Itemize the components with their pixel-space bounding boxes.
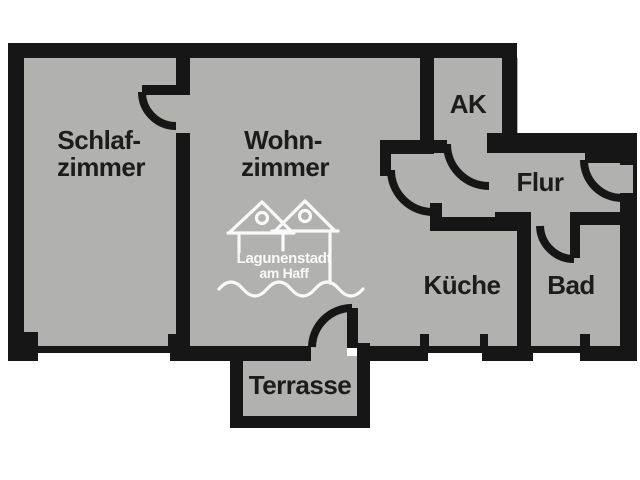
wall: [8, 332, 38, 361]
room-label-kueche: Küche: [424, 270, 501, 300]
wall: [495, 212, 531, 225]
wall: [357, 343, 370, 428]
wall: [420, 334, 429, 346]
wall: [420, 58, 434, 140]
window: [533, 346, 580, 353]
terrace-door-gap: [311, 346, 347, 362]
door-leaf: [585, 150, 622, 163]
wall: [8, 43, 24, 361]
wall: [8, 43, 517, 58]
window: [38, 346, 170, 353]
wall: [176, 133, 190, 346]
room-label-wohnzimmer-line2: zimmer: [241, 152, 329, 182]
wall: [517, 212, 531, 361]
wall: [570, 212, 637, 225]
floor-areas: [22, 58, 621, 418]
wall: [580, 346, 637, 361]
room-label-schlafzimmer-line1: Schlaf-: [57, 125, 140, 155]
room-label-ak: AK: [450, 89, 487, 119]
wall: [168, 334, 190, 346]
floorplan-svg: Schlaf- zimmer Wohn- zimmer AK Flur Küch…: [0, 0, 640, 480]
door-leaf: [570, 225, 580, 258]
room-floor-main: [22, 58, 518, 346]
door-leaf: [347, 308, 358, 348]
room-label-bad: Bad: [547, 270, 595, 300]
room-label-terrasse: Terrasse: [249, 370, 352, 400]
logo-text-line2: am Haff: [259, 265, 309, 281]
wall: [230, 416, 370, 428]
door-leaf: [142, 85, 190, 95]
wall: [380, 140, 434, 154]
floorplan-image: Schlaf- zimmer Wohn- zimmer AK Flur Küch…: [0, 0, 640, 480]
room-label-wohnzimmer-line1: Wohn-: [244, 125, 322, 155]
wall: [482, 346, 533, 361]
wall: [580, 334, 590, 346]
window: [428, 346, 482, 353]
room-label-flur: Flur: [516, 167, 563, 197]
room-label-schlafzimmer-line2: zimmer: [57, 152, 145, 182]
wall: [480, 334, 488, 346]
entrance-door-gap: [620, 165, 633, 193]
wall: [502, 43, 517, 143]
